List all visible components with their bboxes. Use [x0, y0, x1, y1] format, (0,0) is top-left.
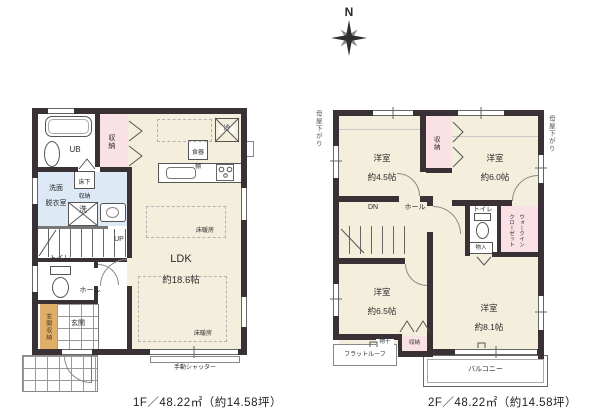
window — [373, 110, 413, 116]
walkin-closet-label: ウォークイン クローゼット — [506, 209, 536, 251]
wall — [426, 168, 452, 173]
underfloor-storage-label: 床下 収納 — [74, 173, 95, 201]
underfloor-line1: 床下 — [78, 180, 90, 186]
window — [538, 296, 544, 330]
room-8-1-size: 約8.1帖 — [475, 322, 504, 332]
toilet-bowl-1f — [52, 277, 69, 298]
room-label-washroom: 洗面 脱衣室 — [38, 177, 74, 208]
wall — [38, 300, 98, 304]
toilet-tank-1f — [50, 266, 71, 275]
room-label-toilet-1f: トイレ — [40, 255, 80, 263]
window — [241, 297, 247, 327]
wall — [420, 196, 427, 202]
window — [241, 188, 247, 220]
wic-line2: クローゼット — [508, 214, 514, 247]
room-4-5-size: 約4.5帖 — [368, 172, 397, 182]
floor-heating-label-living: 床暖房 — [184, 331, 222, 338]
wall — [427, 232, 433, 353]
floor2-caption: 2F／48.22㎡（約14.58坪） — [395, 394, 600, 410]
room-label-8-1: 洋室 約8.1帖 — [460, 294, 518, 332]
room-6-5-name: 洋室 — [373, 287, 390, 297]
wall — [333, 258, 405, 264]
room-6-0-name: 洋室 — [486, 153, 503, 163]
underfloor-line2: 収納 — [78, 194, 90, 200]
wall — [333, 110, 544, 116]
room-label-ldk: LDK 約18.6帖 — [148, 242, 214, 287]
flat-roof-label: フラットルーフ — [335, 352, 395, 359]
wall — [38, 167, 78, 172]
window — [32, 266, 38, 292]
window — [333, 284, 339, 316]
wic-line1: ウォークイン — [518, 214, 524, 247]
stairs-up-label: UP — [108, 236, 130, 244]
toilet-tank-2f — [474, 213, 491, 221]
washroom-line2: 脱衣室 — [46, 200, 67, 207]
room-label-6-0: 洋室 約6.0帖 — [467, 144, 523, 182]
toilet-bowl-2f — [476, 222, 489, 239]
closet-2f-bottom-label: 収納 — [402, 340, 427, 346]
balcony-label: バルコニー — [458, 366, 513, 374]
wall — [32, 108, 38, 355]
wall — [95, 114, 100, 167]
room-label-entrance: 玄関 — [61, 320, 95, 328]
laundry-label: 物干 — [376, 339, 394, 345]
room-label-hall-1f: ホール — [72, 287, 108, 295]
roof-slope-label-right: 母屋下がり — [547, 110, 554, 158]
room-6-0-size: 約6.0帖 — [481, 172, 510, 182]
compass-star-icon — [331, 20, 367, 56]
wall — [398, 351, 433, 357]
room-label-4-5: 洋室 約4.5帖 — [355, 144, 409, 182]
room-6-5-size: 約6.5帖 — [368, 306, 397, 316]
washroom-line1: 洗面 — [49, 185, 63, 192]
floor-heating-label-dining: 床暖房 — [186, 228, 224, 235]
washbasin-bowl — [106, 207, 119, 218]
window-ldk-south — [150, 349, 238, 355]
room-label-hall-2f: ホール — [396, 204, 434, 212]
wall — [127, 286, 132, 349]
floor1-caption: 1F／48.22㎡（約14.58坪） — [95, 394, 320, 410]
fridge-label: 冷 — [219, 125, 235, 133]
ldk-size: 約18.6帖 — [162, 275, 200, 286]
room-label-bath: UB — [60, 146, 90, 155]
storage-box-label: 物入 — [469, 245, 493, 251]
stairs-down-label: DN — [362, 204, 384, 212]
stairs-2f — [339, 226, 408, 254]
wall — [420, 116, 426, 172]
bathtub-inner-line — [48, 119, 89, 134]
wall — [492, 252, 538, 257]
room-8-1-name: 洋室 — [480, 303, 497, 313]
floor-plan-page: UB 収納 洗面 脱衣室 床下 収納 洗 UP トイレ ホール 玄関収納 玄関 … — [0, 0, 600, 420]
entrance-door-leaf — [91, 356, 92, 383]
stove — [216, 164, 234, 181]
wall-vent-nub — [246, 141, 254, 157]
cupboard-line1: 食器 — [192, 150, 204, 156]
cupboard-label: 食器 棚 — [188, 143, 208, 171]
compass-north-label: N — [339, 6, 359, 19]
entrance-storage-label: 玄関収納 — [44, 307, 51, 347]
room-label-toilet-2f: トイレ — [464, 206, 502, 213]
shutter-label: 手動シャッター — [152, 365, 238, 372]
ldk-name: LDK — [170, 253, 191, 265]
closet-2f-top-label: 収納 — [432, 126, 439, 160]
window — [458, 110, 504, 116]
kitchen-upper-cabinet-dashed — [157, 119, 212, 142]
roof-slope-line-right — [452, 136, 538, 137]
cupboard-line2: 棚 — [195, 164, 201, 170]
room-label-6-5: 洋室 約6.5帖 — [354, 278, 410, 316]
roof-slope-line-left — [339, 129, 421, 130]
shutter-box — [150, 356, 240, 363]
wall — [127, 172, 132, 258]
window — [48, 108, 74, 114]
window — [538, 155, 544, 183]
room-label-closet-1f: 収納 — [107, 122, 115, 162]
bath-stool-oval — [44, 141, 60, 167]
entrance-step-line — [98, 304, 99, 349]
entrance-door-opening — [62, 349, 92, 355]
wall — [32, 349, 62, 355]
room-4-5-name: 洋室 — [373, 153, 390, 163]
window-balcony-door — [455, 349, 537, 355]
washer-label: 洗 — [76, 206, 90, 215]
roof-slope-label-left: 母屋下がり — [314, 105, 321, 153]
wall — [333, 196, 399, 202]
wall — [38, 226, 108, 229]
window — [333, 146, 339, 178]
